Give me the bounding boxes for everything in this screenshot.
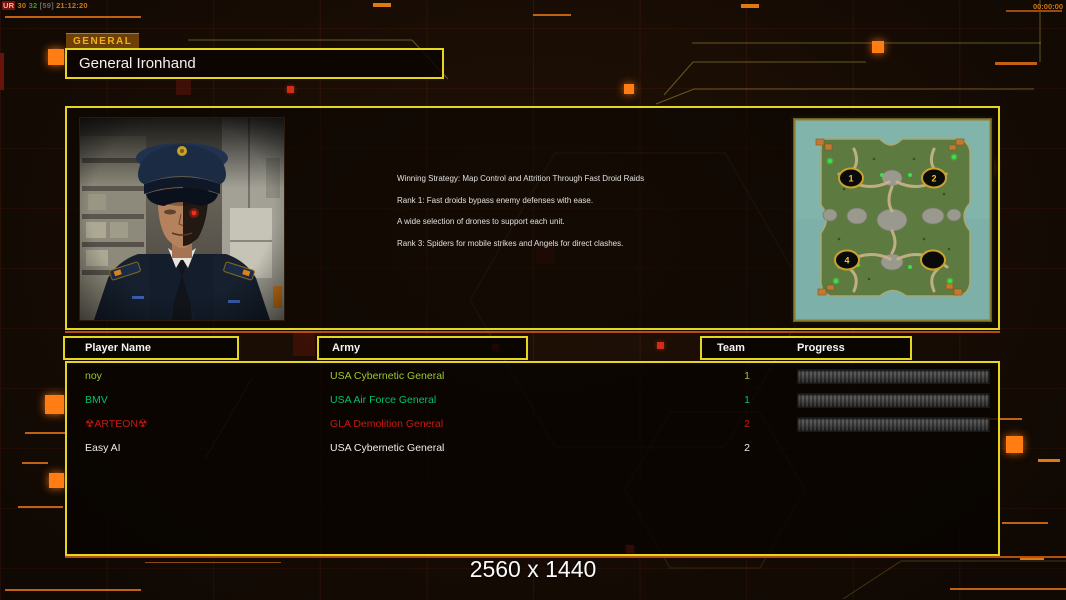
player-team: 2: [734, 412, 750, 436]
player-row: Easy AI USA Cybernetic General 2: [67, 436, 998, 460]
start-position-marker: [921, 251, 945, 270]
circuit-square-red: [657, 342, 664, 349]
load-progress-bar: [797, 369, 990, 384]
status-clock: 21:12:20: [56, 1, 88, 10]
svg-text:2: 2: [931, 174, 936, 184]
general-portrait: [79, 117, 285, 321]
svg-text:4: 4: [844, 256, 849, 266]
edge-accent-bar: [0, 53, 4, 90]
circuit-dash: [18, 506, 63, 508]
load-progress-bar: [797, 417, 990, 432]
circuit-square: [624, 84, 634, 94]
player-team: 1: [734, 364, 750, 388]
strategy-text: Winning Strategy: Map Control and Attrit…: [397, 174, 693, 260]
player-name: BMV: [85, 388, 108, 412]
player-army: GLA Demolition General: [330, 412, 443, 436]
status-tag: UR: [2, 1, 15, 10]
loading-screen: UR 30 32 [59] 21:12:20 00:00:00 GENERAL …: [0, 0, 1066, 600]
circuit-dash: [1038, 459, 1060, 462]
start-position-marker: 2: [922, 169, 946, 188]
player-name: ☢ARTEON☢: [85, 412, 147, 436]
circuit-dash: [950, 588, 1066, 590]
panel-accent-line: [65, 331, 1000, 333]
circuit-square: [1006, 436, 1023, 453]
circuit-dash: [25, 432, 65, 434]
strategy-line: Rank 3: Spiders for mobile strikes and A…: [397, 239, 693, 250]
strategy-line: A wide selection of drones to support ea…: [397, 217, 693, 228]
circuit-square: [48, 49, 64, 65]
strategy-line: Winning Strategy: Map Control and Attrit…: [397, 174, 693, 185]
status-readout: UR 30 32 [59] 21:12:20: [2, 1, 88, 10]
general-tab-label: GENERAL: [66, 33, 139, 49]
status-value: 32: [29, 1, 38, 10]
player-name: Easy AI: [85, 436, 121, 460]
player-army: USA Cybernetic General: [330, 364, 444, 388]
player-team: 2: [734, 436, 750, 460]
circuit-dash: [5, 589, 141, 591]
circuit-square-dim: [176, 80, 191, 95]
match-timer: 00:00:00: [1033, 2, 1063, 11]
start-position-marker: 4: [835, 251, 859, 270]
player-team: 1: [734, 388, 750, 412]
strategy-line: Rank 1: Fast droids bypass enemy defense…: [397, 196, 693, 207]
circuit-dash: [1002, 522, 1048, 524]
resolution-label: 2560 x 1440: [0, 556, 1066, 583]
player-table: noy USA Cybernetic General 1 BMV USA Air…: [65, 361, 1000, 556]
player-name: noy: [85, 364, 102, 388]
header-player-name: Player Name: [63, 336, 239, 360]
player-row: noy USA Cybernetic General 1: [67, 364, 998, 388]
general-info-panel: Winning Strategy: Map Control and Attrit…: [65, 106, 1000, 330]
general-name-box: General Ironhand: [65, 48, 444, 79]
header-army: Army: [317, 336, 528, 360]
status-extra: [59]: [40, 1, 54, 10]
circuit-dash: [22, 462, 48, 464]
circuit-dash: [995, 62, 1037, 65]
circuit-dash: [741, 4, 759, 8]
map-preview: 1 2 4: [793, 118, 992, 322]
svg-text:1: 1: [848, 174, 853, 184]
circuit-dash: [373, 3, 391, 7]
start-position-marker: 1: [839, 169, 863, 188]
load-progress-bar: [797, 393, 990, 408]
circuit-dash: [533, 14, 571, 16]
player-army: USA Cybernetic General: [330, 436, 444, 460]
header-team-progress: Team Progress: [700, 336, 912, 360]
player-row: ☢ARTEON☢ GLA Demolition General 2: [67, 412, 998, 436]
circuit-square-red: [287, 86, 294, 93]
circuit-square-dim: [293, 332, 315, 356]
circuit-dash: [5, 16, 141, 18]
player-army: USA Air Force General: [330, 388, 436, 412]
circuit-square: [872, 41, 884, 53]
circuit-square: [49, 473, 64, 488]
header-team: Team: [717, 338, 745, 358]
header-progress: Progress: [797, 338, 845, 358]
player-row: BMV USA Air Force General 1: [67, 388, 998, 412]
circuit-square: [45, 395, 64, 414]
fps-value: 30: [18, 1, 27, 10]
